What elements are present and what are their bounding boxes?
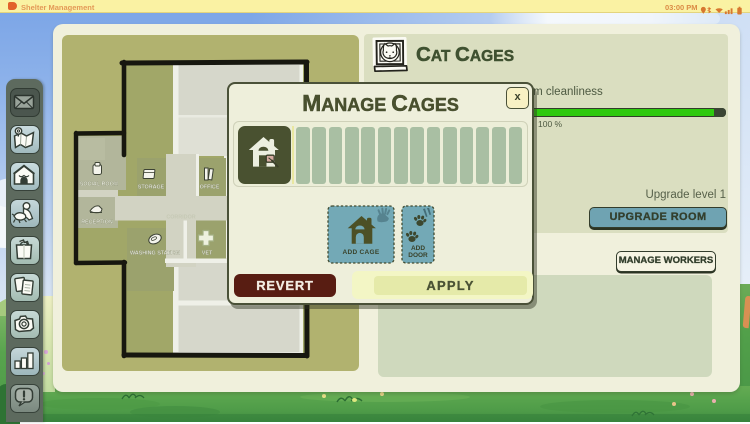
svg-text:SOCIAL ROOM: SOCIAL ROOM [80,182,119,188]
svg-text:VET: VET [202,251,213,257]
svg-text:STORAGE: STORAGE [138,185,165,191]
svg-text:CORRIDOR: CORRIDOR [166,215,195,221]
svg-text:OFFICE: OFFICE [200,185,220,191]
svg-text:WASHING STATION: WASHING STATION [130,251,180,257]
svg-text:RECEPTION: RECEPTION [81,220,113,226]
